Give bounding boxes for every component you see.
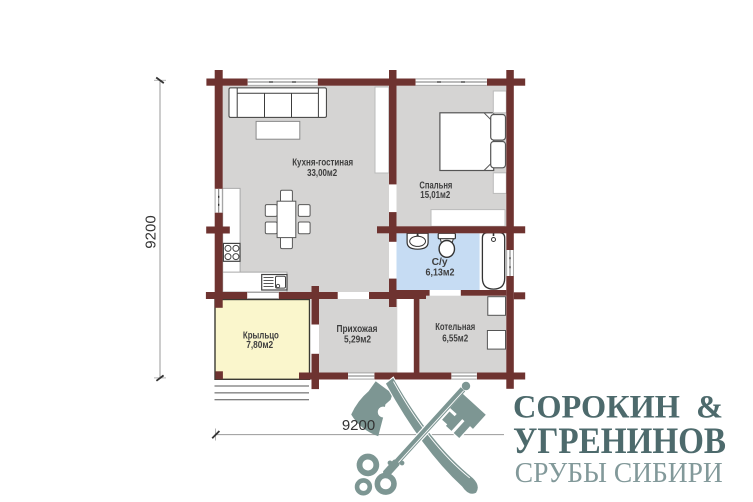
svg-text:33,00м2: 33,00м2 [307,167,337,179]
svg-text:5,29м2: 5,29м2 [344,333,371,345]
svg-text:6,13м2: 6,13м2 [426,267,455,279]
svg-text:9200: 9200 [342,417,375,434]
svg-text:СРУБЫ СИБИРИ: СРУБЫ СИБИРИ [515,457,723,489]
svg-text:15,01м2: 15,01м2 [420,189,450,201]
svg-text:УГРЕНИНОВ: УГРЕНИНОВ [513,421,726,462]
svg-text:7,80м2: 7,80м2 [246,339,273,351]
svg-text:Котельная: Котельная [435,321,475,333]
svg-text:9200: 9200 [143,215,160,248]
svg-text:6,55м2: 6,55м2 [442,333,468,345]
